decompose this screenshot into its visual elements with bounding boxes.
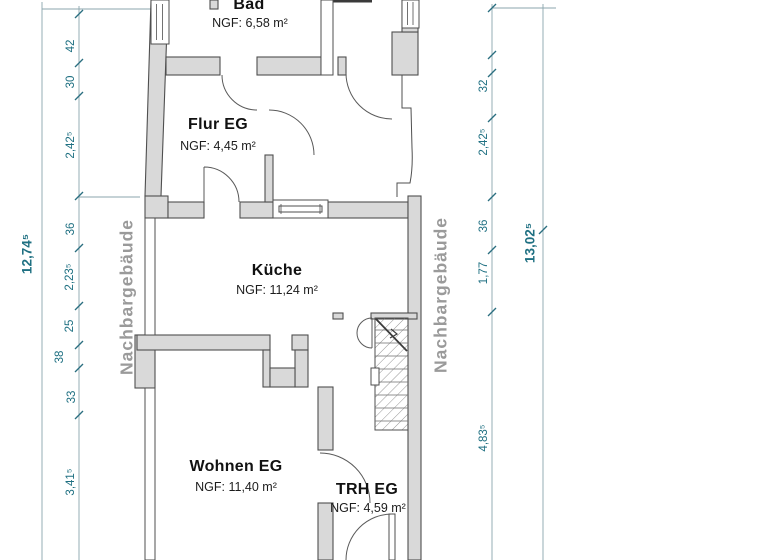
door-leaf-trh	[389, 514, 395, 560]
door-arc-stairs	[357, 318, 372, 348]
dim-right-total: 13,02⁵	[523, 223, 538, 263]
floorplan-canvas: Bad NGF: 6,58 m² Flur EG NGF: 4,45 m² Kü…	[0, 0, 768, 560]
window-left-icon	[151, 0, 169, 44]
dim-left-0: 42	[65, 40, 77, 53]
window-right-icon	[402, 0, 419, 28]
dim-left-8: 3,41⁵	[65, 468, 77, 495]
room-label-trh: TRH EG	[336, 481, 398, 499]
door-arc-bad	[222, 75, 257, 110]
stairs-symbol	[371, 318, 408, 430]
door-arc-trh-bottom	[346, 514, 392, 560]
door-arc-flur-left	[204, 167, 239, 202]
dim-left-total: 12,74⁵	[20, 234, 35, 274]
dimension-ticks-right	[488, 4, 547, 316]
cut-off-element	[330, 0, 372, 3]
room-area-trh: NGF: 4,59 m²	[330, 501, 406, 515]
dim-right-3: 1,77	[478, 262, 490, 284]
dim-left-4: 2,23⁵	[64, 263, 76, 290]
dim-right-0: 32	[478, 80, 490, 93]
room-label-flur: Flur EG	[188, 116, 248, 134]
dim-left-2: 2,42⁵	[65, 131, 77, 158]
door-arc-top-right-room	[346, 73, 392, 119]
dim-left-6: 38	[54, 351, 66, 364]
door-arc-flur-right	[269, 110, 314, 155]
floorplan-drawing	[0, 0, 768, 560]
neighbor-label-left: Nachbargebäude	[117, 219, 138, 375]
room-area-kueche: NGF: 11,24 m²	[236, 283, 318, 297]
dim-left-1: 30	[65, 76, 77, 89]
windows-layer	[151, 0, 419, 218]
room-area-wohnen: NGF: 11,40 m²	[195, 480, 277, 494]
walls-layer	[135, 0, 421, 560]
dim-left-3: 36	[65, 223, 77, 236]
neighbor-label-right: Nachbargebäude	[431, 217, 452, 373]
room-label-wohnen: Wohnen EG	[189, 458, 282, 476]
existing-walls-layer	[145, 0, 412, 560]
room-label-kueche: Küche	[252, 262, 302, 280]
dim-left-5: 25	[64, 320, 76, 333]
room-label-bad: Bad	[233, 0, 264, 14]
dim-left-7: 33	[66, 391, 78, 404]
room-area-flur: NGF: 4,45 m²	[180, 139, 256, 153]
dim-right-4: 4,83⁵	[478, 424, 490, 451]
window-interior-icon	[273, 200, 328, 218]
dim-right-2: 36	[478, 220, 490, 233]
dim-right-1: 2,42⁵	[478, 128, 490, 155]
room-area-bad: NGF: 6,58 m²	[212, 16, 288, 30]
